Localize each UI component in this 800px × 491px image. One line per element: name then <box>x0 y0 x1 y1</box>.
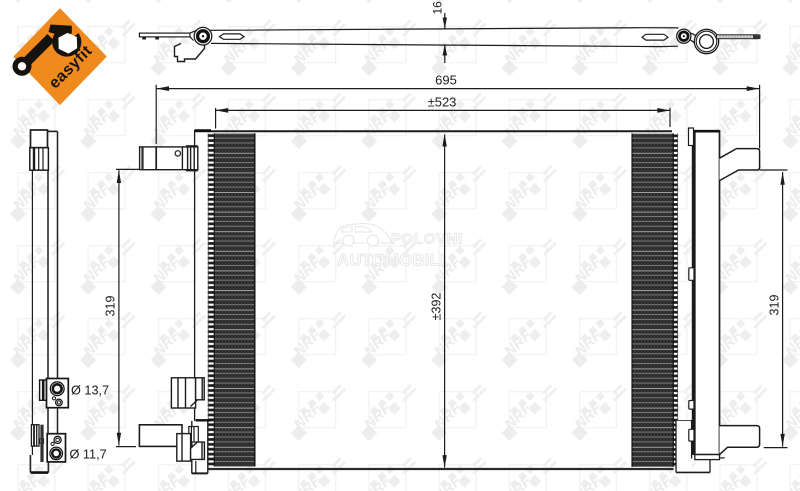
svg-text:Ø 13,7: Ø 13,7 <box>71 383 109 397</box>
svg-text:16: 16 <box>431 1 445 15</box>
svg-text:POLOVNI: POLOVNI <box>391 232 463 248</box>
svg-text:Ø 11,7: Ø 11,7 <box>70 447 107 461</box>
svg-text:±392: ±392 <box>430 293 444 321</box>
svg-text:319: 319 <box>768 295 782 316</box>
svg-text:695: 695 <box>435 73 457 88</box>
svg-text:±523: ±523 <box>428 94 457 109</box>
svg-text:319: 319 <box>104 296 118 317</box>
svg-text:AUTOMOBILI: AUTOMOBILI <box>337 251 445 270</box>
